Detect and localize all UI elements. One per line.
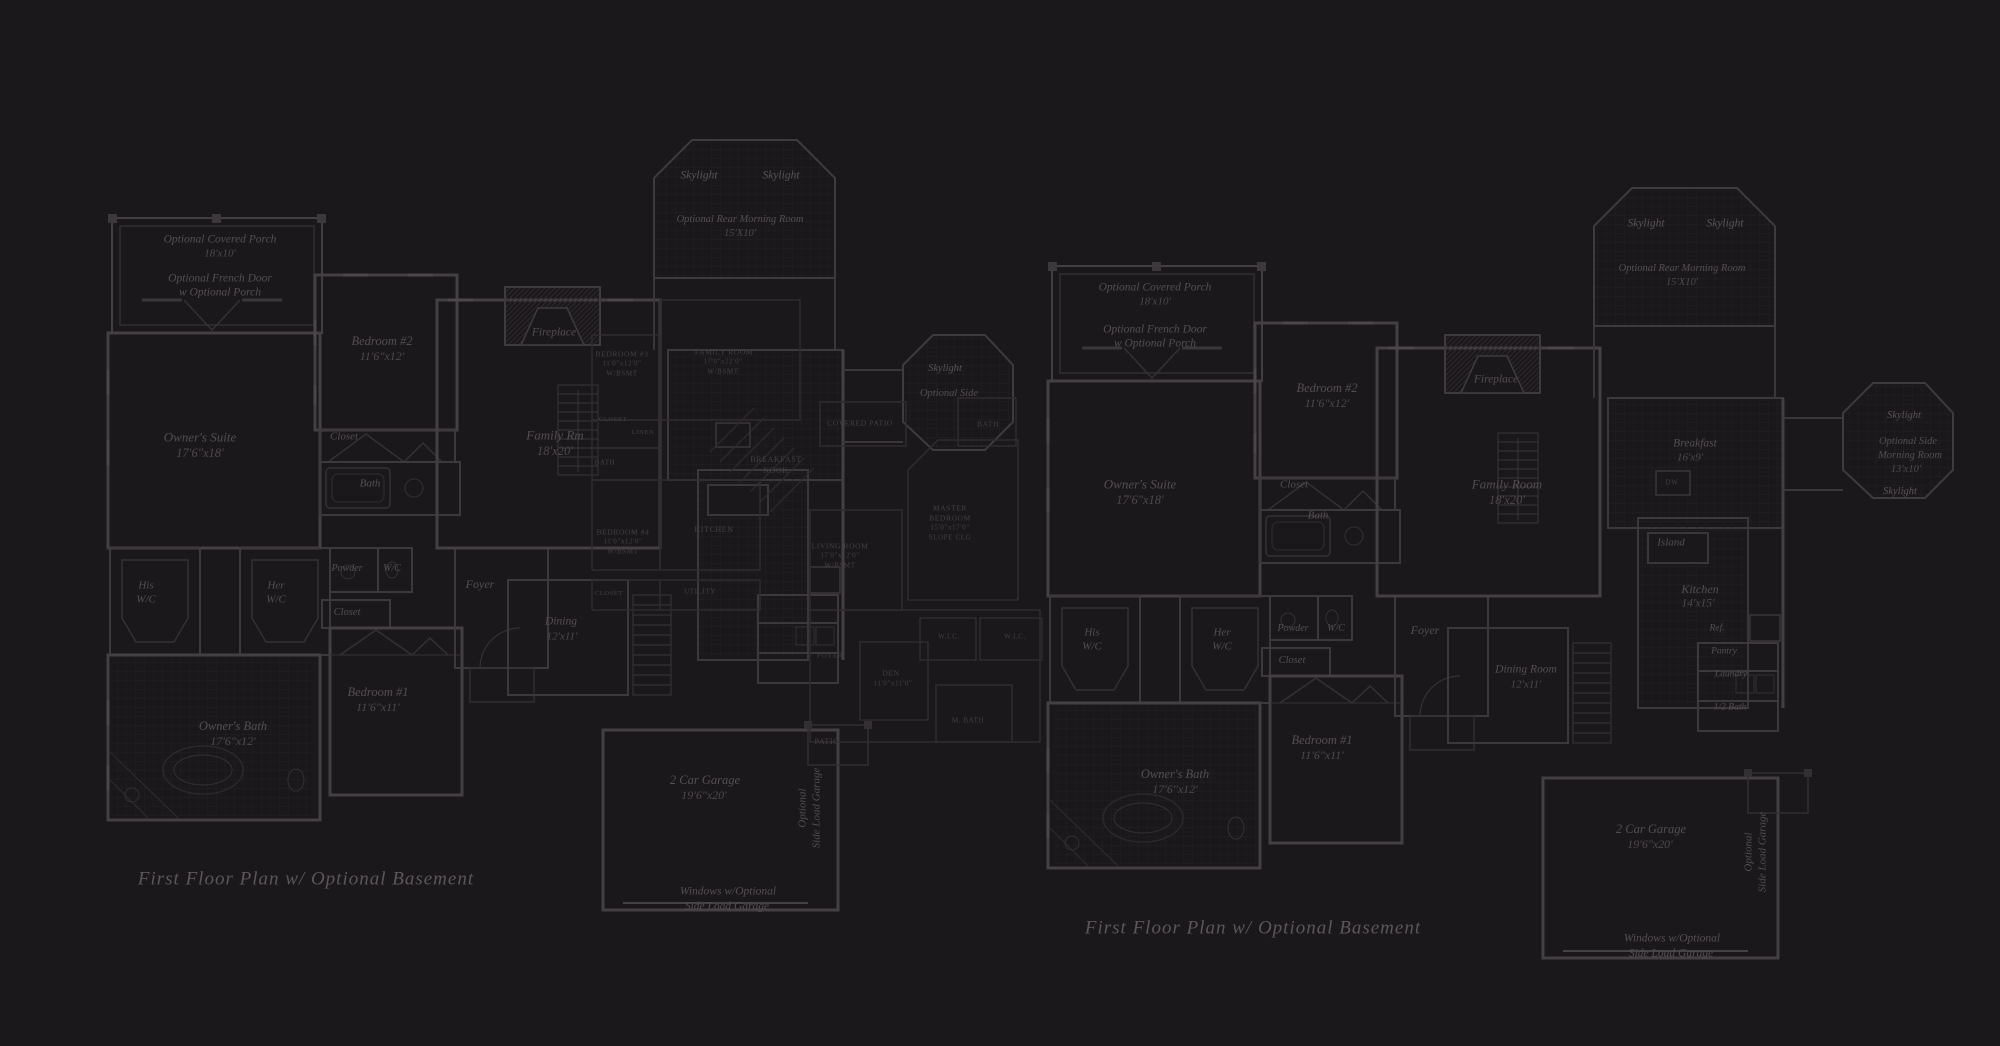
room-label: Side Load Garage [685, 901, 769, 913]
room-label: Optional French Door [168, 273, 272, 285]
room-label: PATIO [815, 738, 840, 746]
room-label: W/C [383, 564, 401, 574]
room-label: Side Load Garage [1629, 948, 1713, 960]
room-label: 17'6"x18' [176, 447, 223, 460]
room-label: 17'6"x12' [210, 735, 256, 747]
room-label: Bedroom #1 [348, 686, 409, 699]
room-label: 14'x15' [1681, 598, 1714, 610]
room-label: 11'6"x12' [360, 350, 405, 362]
room-label: W/C [1327, 624, 1345, 634]
room-label: W/C [1082, 642, 1102, 653]
room-label: MASTER [933, 504, 967, 512]
room-label: DEN [882, 669, 899, 677]
room-label: Owner's Bath [1141, 768, 1209, 781]
room-label: COVERED PATIO [827, 419, 893, 427]
room-label: Dining Room [1495, 664, 1557, 676]
room-label: 15'X10' [724, 229, 756, 240]
room-label: BEDROOM #3 [596, 350, 649, 358]
room-label: 18'x10' [204, 249, 236, 260]
room-label: W/C [266, 595, 286, 606]
room-label: 15'0"x17'0" [930, 525, 969, 532]
room-label: BEDROOM #4 [597, 528, 650, 536]
room-label: 11'0"x12'0" [603, 539, 642, 546]
room-label: 18'x20' [537, 445, 573, 458]
room-label: 11'6"x11' [1300, 749, 1344, 761]
room-label: 17'0"x12'0" [820, 553, 859, 560]
room-label: Laundry [1715, 670, 1747, 680]
room-label: 18'x20' [1489, 494, 1525, 507]
room-label: Closet [330, 432, 358, 443]
room-label: His [138, 581, 153, 592]
room-label: Optional Covered Porch [1099, 282, 1212, 294]
room-label: w Optional Porch [179, 287, 261, 299]
room-label: W/C [1212, 642, 1232, 653]
room-label: Owner's Bath [199, 720, 267, 733]
room-label: Skylight [680, 170, 717, 182]
plan-title: First Floor Plan w/ Optional Basement [138, 870, 474, 889]
room-label: w Optional Porch [1114, 338, 1196, 350]
room-label: 17'6"x12' [1152, 783, 1198, 795]
room-label: Foyer [466, 578, 495, 590]
room-label: Skylight [1887, 411, 1921, 422]
room-label: Optional Rear Morning Room [677, 215, 804, 226]
room-label: Ref. [1709, 624, 1724, 634]
room-label: Optional Side [1879, 437, 1937, 448]
room-label: KITCHEN [694, 526, 733, 534]
room-label: Bedroom #1 [1292, 734, 1353, 747]
room-label: Fireplace [1474, 374, 1518, 386]
room-label: Side Load Garage [1758, 812, 1769, 893]
room-label: M. BATH [952, 718, 984, 725]
room-label: BREAKFAST [750, 456, 801, 464]
room-label: LIVING ROOM [812, 542, 869, 550]
room-label: Closet [1279, 656, 1306, 667]
room-label: W/BSMT [606, 371, 637, 378]
room-label: Family Rm [526, 429, 583, 442]
room-label: Breakfast [1673, 438, 1717, 450]
room-label: Skylight [762, 170, 799, 182]
room-label: Bedroom #2 [352, 335, 413, 348]
room-label: Fireplace [532, 327, 576, 339]
room-label: Kitchen [1681, 583, 1718, 595]
room-label: W.I.C. [938, 634, 960, 641]
room-label: 15'X10' [1666, 278, 1698, 289]
room-label: Her [1213, 628, 1230, 639]
room-label: Bath [360, 479, 381, 490]
room-label: BEDROOM [929, 514, 971, 522]
room-label: Optional Covered Porch [164, 234, 277, 246]
room-label: 12'x11' [547, 632, 578, 643]
room-label: NOOK [763, 467, 789, 475]
room-label: Optional Side [920, 389, 978, 400]
room-label: 11'6"x12' [1305, 397, 1350, 409]
room-label: 17'6"x18' [1116, 494, 1163, 507]
room-label: Dining [545, 616, 577, 628]
room-label: Optional French Door [1103, 324, 1207, 336]
room-label: 11'0"x12'0" [602, 361, 641, 368]
room-label: 1/2 Bath [1714, 703, 1746, 713]
room-label: 19'6"x20' [681, 789, 727, 801]
room-label: W/BSMT [607, 549, 638, 556]
room-label: Side Load Garage [812, 768, 823, 849]
room-label: 2 Car Garage [1616, 823, 1686, 836]
room-label: 12'x11' [1511, 680, 1542, 691]
room-label: Family Room [1472, 478, 1542, 491]
room-label: Optional [1744, 832, 1755, 871]
room-label: Skylight [1627, 218, 1664, 230]
room-label: Closet [334, 608, 361, 619]
room-label: LINEN [632, 430, 655, 437]
plan-title: First Floor Plan w/ Optional Basement [1085, 919, 1421, 938]
room-label: 18'x10' [1139, 297, 1171, 308]
room-label: 11'0"x11'0" [874, 681, 913, 688]
room-label: Foyer [1411, 624, 1440, 636]
room-label: Closet [1280, 480, 1308, 491]
room-label: BATH [595, 460, 616, 467]
room-label: UTILITY [684, 589, 716, 596]
room-label: 17'0"x22'0" [703, 359, 742, 366]
room-label: Skylight [1706, 218, 1743, 230]
label-layer: Optional Covered Porch18'x10'Optional Fr… [0, 0, 2000, 1046]
room-label: Windows w/Optional [680, 886, 776, 898]
room-label: Optional [798, 788, 809, 827]
room-label: CLOSET [595, 591, 623, 598]
room-label: W/C [136, 595, 156, 606]
room-label: Powder [1277, 624, 1308, 634]
room-label: SLOPE CLG [929, 535, 972, 542]
room-label: Powder [331, 564, 362, 574]
room-label: Owner's Suite [1104, 478, 1176, 491]
room-label: Windows w/Optional [1624, 933, 1720, 945]
room-label: Owner's Suite [164, 431, 236, 444]
room-label: W.I.C. [1004, 634, 1026, 641]
room-label: 2 Car Garage [670, 774, 740, 787]
room-label: FOYER [817, 653, 843, 660]
room-label: 11'6"x11' [356, 701, 400, 713]
room-label: BATH [977, 420, 999, 428]
room-label: His [1084, 628, 1099, 639]
room-label: 13'x10' [1891, 465, 1921, 476]
room-label: W/BSMT [707, 369, 738, 376]
room-label: Skylight [1883, 487, 1917, 498]
room-label: 16'x9' [1677, 453, 1703, 464]
room-label: Morning Room [1878, 451, 1942, 462]
room-label: Optional Rear Morning Room [1619, 264, 1746, 275]
room-label: W/BSMT [824, 563, 855, 570]
room-label: Her [267, 581, 284, 592]
room-label: FAMILY ROOM [695, 348, 753, 356]
room-label: CLOSET [599, 417, 627, 424]
blueprint-canvas: Optional Covered Porch18'x10'Optional Fr… [0, 0, 2000, 1046]
room-label: DW [1666, 480, 1679, 487]
room-label: 19'6"x20' [1627, 838, 1673, 850]
room-label: Skylight [928, 364, 962, 375]
room-label: Bedroom #2 [1297, 382, 1358, 395]
room-label: Bath [1308, 511, 1329, 522]
room-label: Pantry [1711, 647, 1737, 657]
room-label: Island [1657, 538, 1685, 549]
